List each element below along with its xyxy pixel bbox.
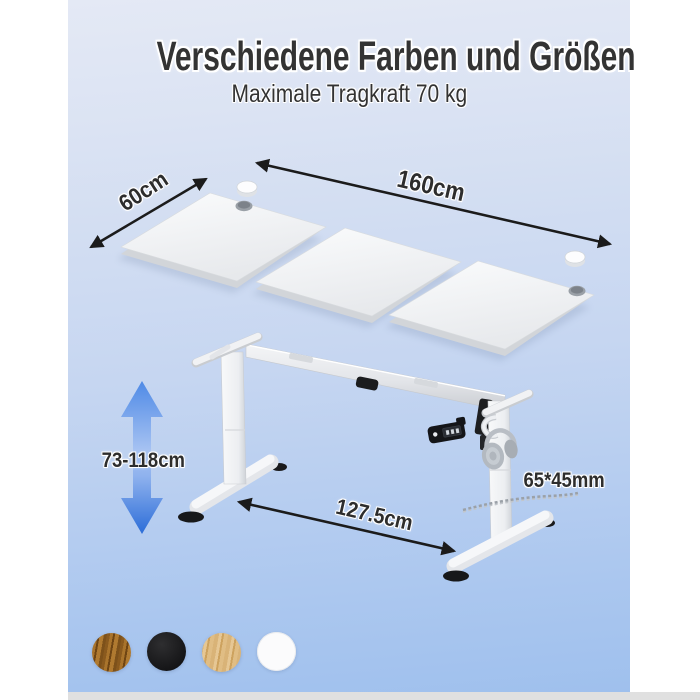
bottom-strip [68, 692, 700, 700]
page-subtitle: Maximale Tragkraft 70 kg [68, 80, 630, 109]
swatch-black [147, 632, 186, 671]
label-height-range: 73-118cm [83, 449, 203, 473]
product-infographic: Verschiedene Farben und Größen Maximale … [0, 0, 700, 700]
page-title: Verschiedene Farben und Größen [68, 33, 630, 80]
swatch-light-oak [202, 633, 241, 672]
swatch-dark-wood [92, 633, 131, 672]
label-column-profile: 65*45mm [504, 469, 624, 493]
swatch-white [257, 632, 296, 671]
